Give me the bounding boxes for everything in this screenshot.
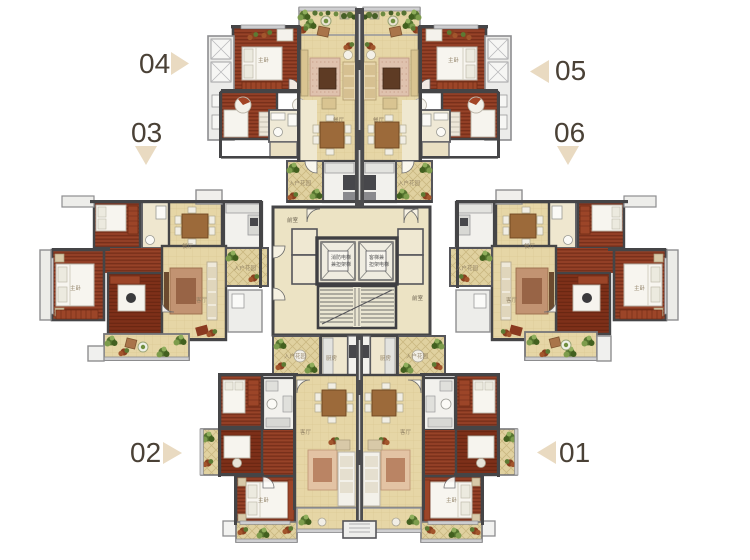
svg-text:主卧: 主卧: [258, 496, 270, 504]
svg-text:前室: 前室: [412, 294, 424, 302]
svg-text:前室: 前室: [287, 216, 299, 224]
svg-text:客厅: 客厅: [196, 296, 208, 304]
svg-text:入户花园: 入户花园: [234, 264, 257, 272]
svg-text:入户花园: 入户花园: [398, 179, 421, 187]
svg-text:01: 01: [559, 437, 590, 468]
svg-text:入户花园: 入户花园: [406, 352, 429, 360]
svg-text:02: 02: [130, 437, 161, 468]
svg-text:客厅: 客厅: [400, 428, 412, 436]
svg-text:厨房: 厨房: [380, 354, 392, 362]
svg-text:主卧: 主卧: [446, 496, 458, 504]
svg-text:03: 03: [131, 117, 162, 148]
svg-text:06: 06: [554, 117, 585, 148]
svg-text:主卧: 主卧: [258, 56, 270, 64]
svg-text:入户花园: 入户花园: [284, 352, 307, 360]
svg-text:厨房: 厨房: [326, 354, 338, 362]
svg-text:餐厅: 餐厅: [182, 242, 194, 250]
svg-text:餐厅: 餐厅: [333, 116, 345, 124]
svg-text:餐厅: 餐厅: [373, 116, 385, 124]
svg-text:消防电梯: 消防电梯: [331, 254, 351, 261]
svg-text:04: 04: [139, 48, 170, 79]
svg-text:入户花园: 入户花园: [289, 179, 312, 187]
svg-text:客厅: 客厅: [506, 296, 518, 304]
svg-text:客梯兼: 客梯兼: [369, 254, 384, 261]
svg-text:主卧: 主卧: [634, 284, 646, 292]
svg-text:兼担架梯: 兼担架梯: [331, 261, 351, 268]
svg-text:入户花园: 入户花园: [456, 264, 479, 272]
svg-text:担架电梯: 担架电梯: [369, 261, 389, 268]
svg-text:05: 05: [555, 55, 586, 86]
svg-text:客厅: 客厅: [300, 428, 312, 436]
svg-text:主卧: 主卧: [448, 56, 460, 64]
svg-text:餐厅: 餐厅: [524, 242, 536, 250]
svg-text:主卧: 主卧: [70, 284, 82, 292]
